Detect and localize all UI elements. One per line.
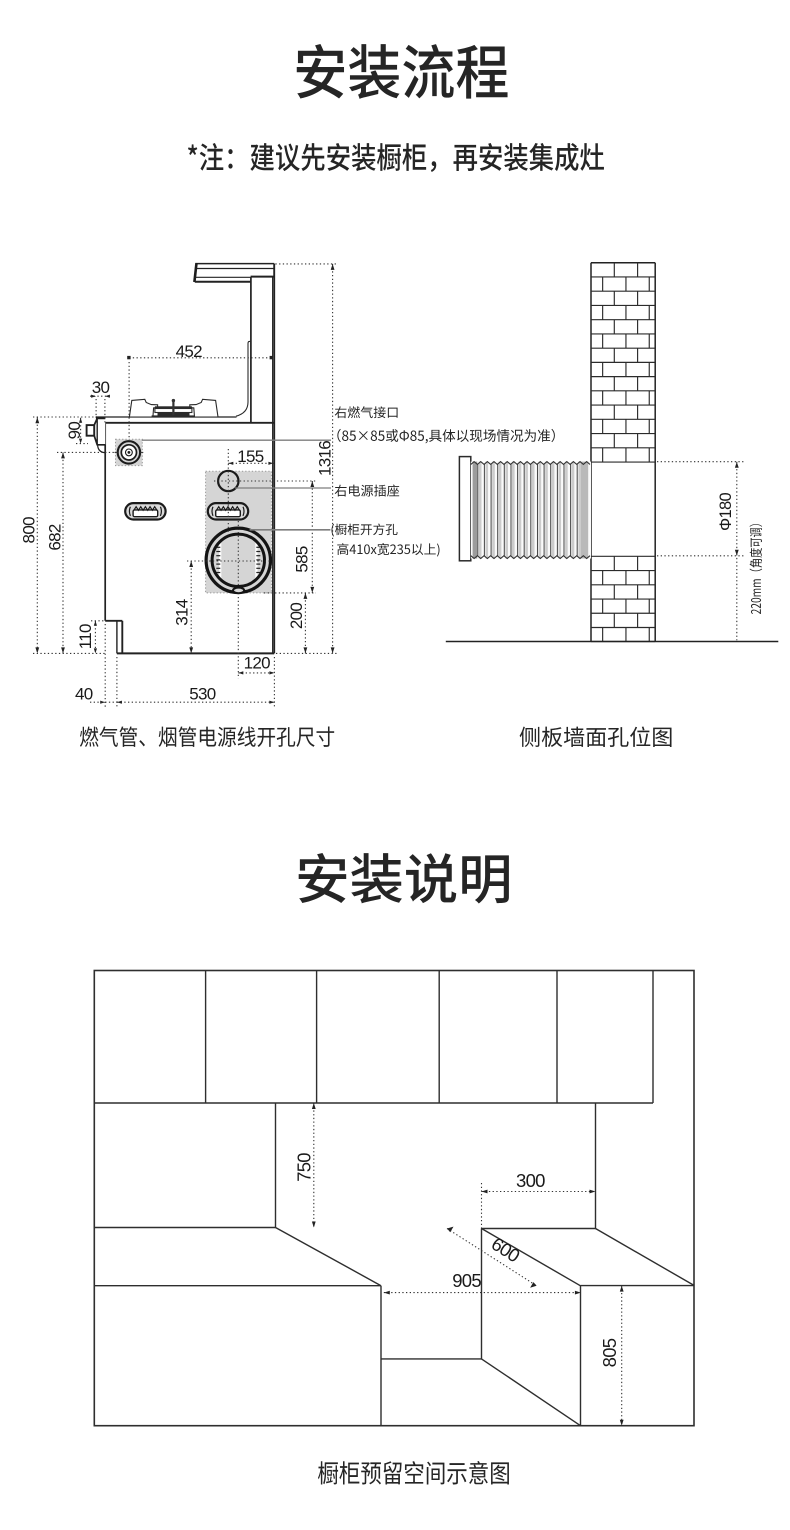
svg-text:120: 120 <box>244 653 271 672</box>
svg-text:200: 200 <box>287 603 306 630</box>
svg-text:110: 110 <box>76 624 95 649</box>
svg-text:800: 800 <box>20 517 39 544</box>
svg-text:Φ180: Φ180 <box>717 493 735 531</box>
svg-text:30: 30 <box>92 378 110 397</box>
svg-text:90: 90 <box>65 422 84 440</box>
svg-text:682: 682 <box>45 524 64 551</box>
svg-text:155: 155 <box>237 447 264 466</box>
svg-text:40: 40 <box>75 685 93 704</box>
svg-text:1316: 1316 <box>316 441 335 476</box>
svg-text:452: 452 <box>176 342 203 361</box>
svg-text:585: 585 <box>292 546 311 573</box>
svg-text:314: 314 <box>173 599 192 626</box>
svg-text:905: 905 <box>452 1270 481 1291</box>
svg-text:805: 805 <box>599 1338 620 1367</box>
svg-text:530: 530 <box>189 685 216 704</box>
svg-text:300: 300 <box>516 1170 545 1191</box>
svg-text:750: 750 <box>293 1153 314 1182</box>
